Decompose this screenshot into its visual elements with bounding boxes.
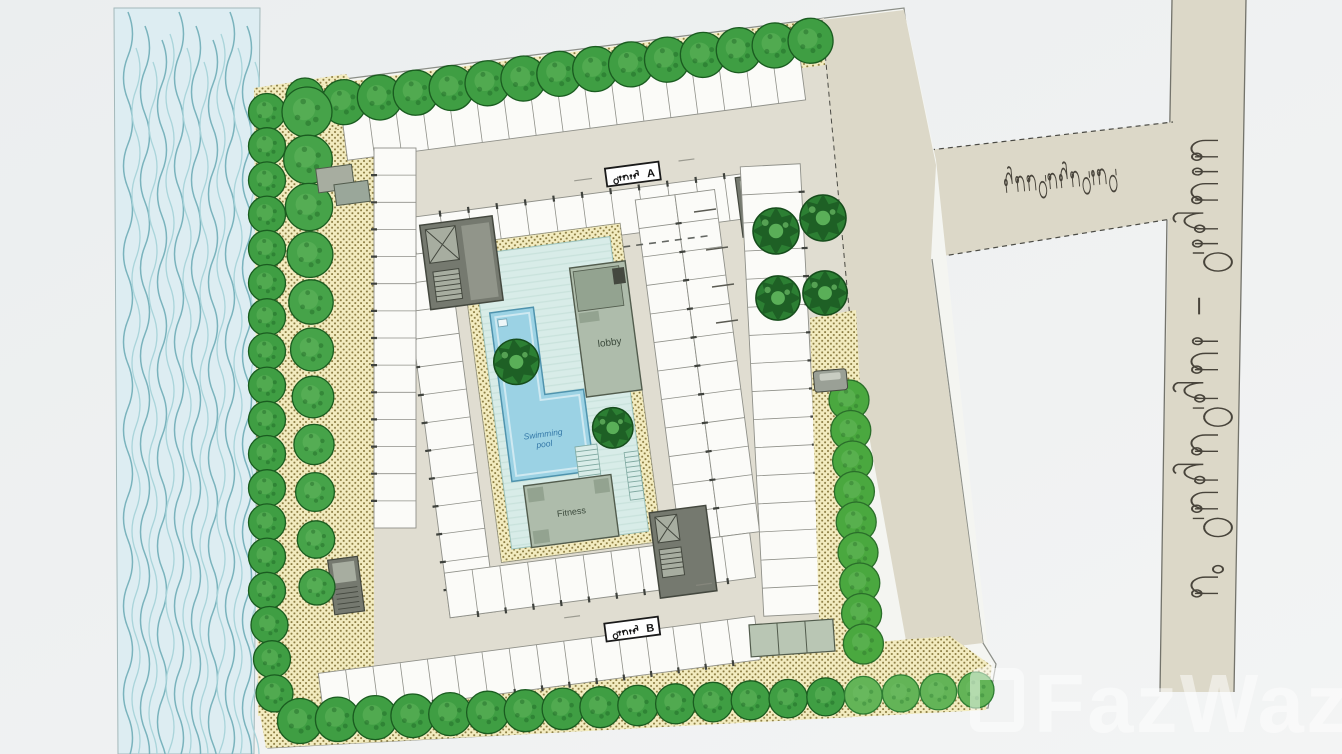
svg-text:B: B (646, 622, 655, 635)
svg-text:FazWaz: FazWaz (1034, 657, 1342, 750)
svg-text:A: A (646, 167, 655, 180)
